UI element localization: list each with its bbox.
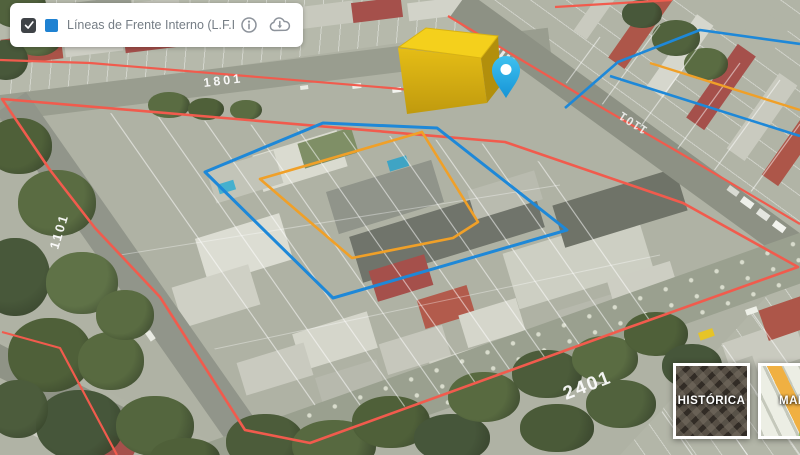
highlighted-building-3d [398,28,501,114]
lot-lines [110,112,720,421]
layer-panel: Líneas de Frente Interno (L.F.I) [10,3,303,47]
layer-label: Líneas de Frente Interno (L.F.I) [67,18,234,32]
check-icon [23,19,35,31]
cars [145,83,786,342]
thumbnail-label: MAPA [779,395,800,407]
layer-checkbox[interactable] [21,18,36,33]
map-3d-view[interactable]: 1801 1101 1101 2401 HISTÓRICA MAPA [0,0,800,455]
basemap-thumbnail-mapa[interactable]: MAPA [758,363,800,439]
street-label-bottom: 2401 [560,367,614,405]
layer-color-swatch [45,19,58,32]
location-pin-icon[interactable] [492,56,520,98]
info-icon[interactable] [240,16,258,34]
thumbnail-label: HISTÓRICA [678,395,746,407]
basemap-thumbnail-historica[interactable]: HISTÓRICA [673,363,750,439]
street-label-top: 1801 [203,71,244,90]
lot-lines [510,25,800,262]
street-label-left: 1101 [47,212,72,251]
cloud-download-icon[interactable] [268,16,292,34]
street-label-right: 1101 [615,108,650,137]
